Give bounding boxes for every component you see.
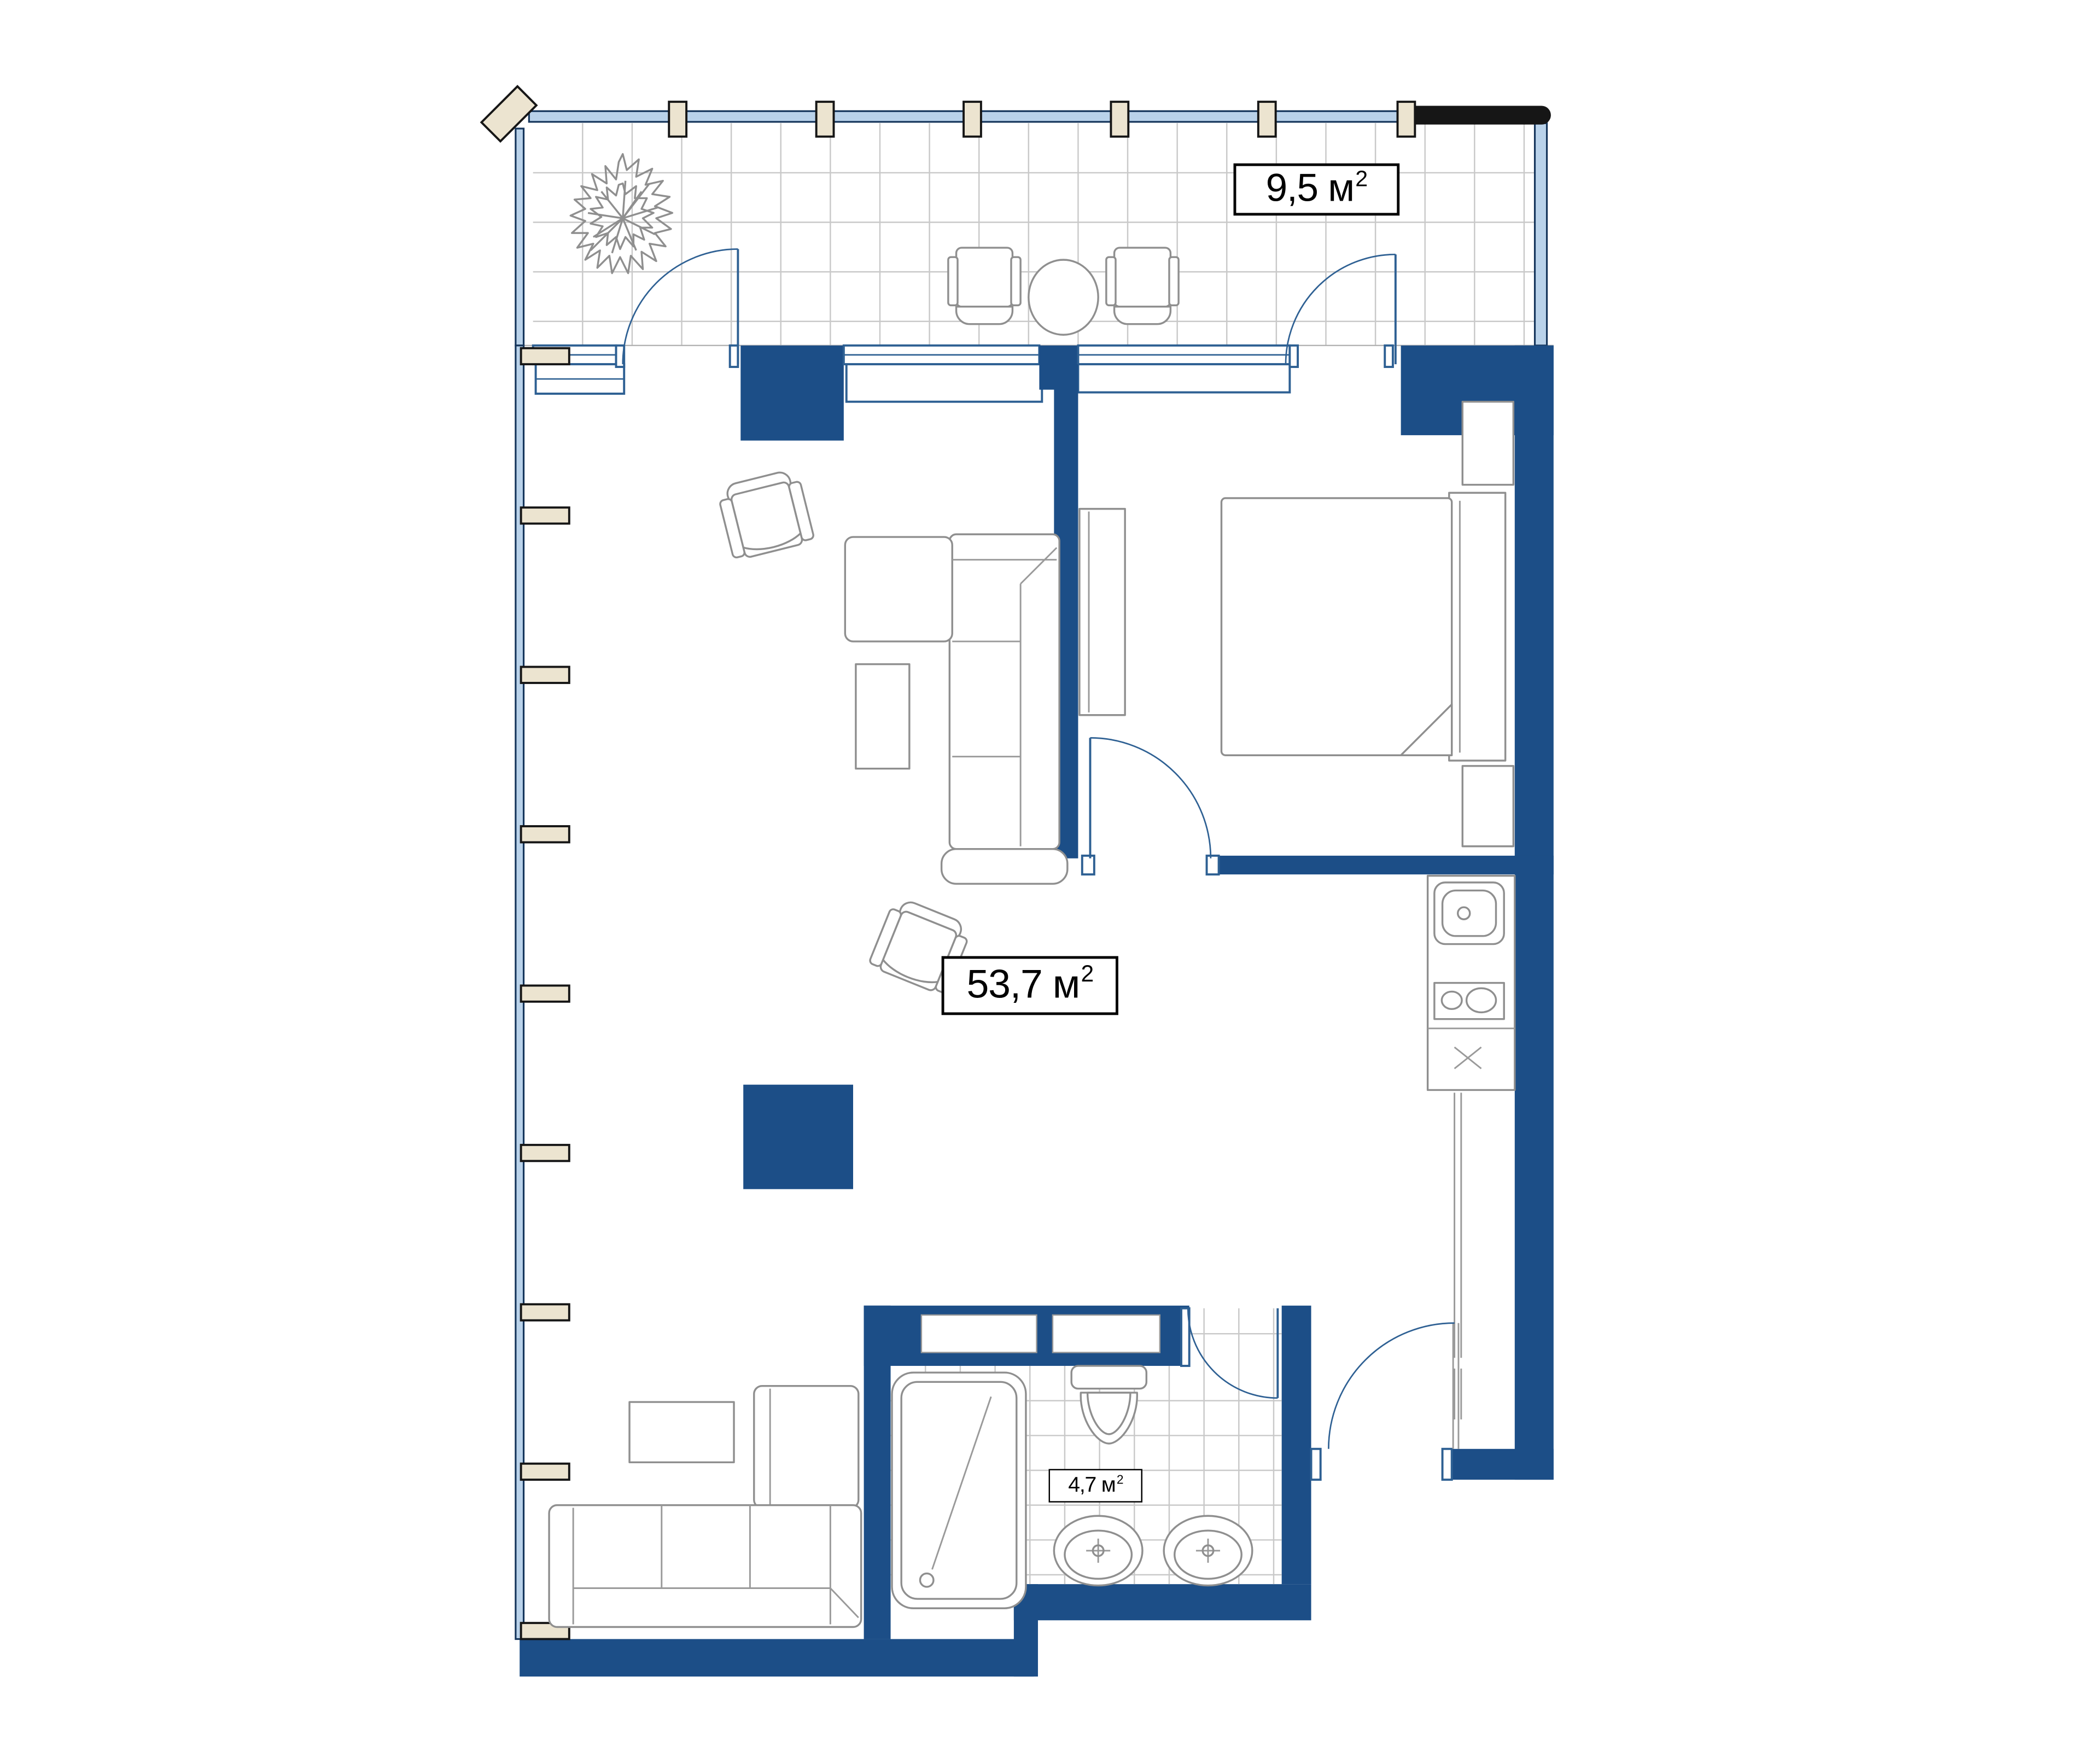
- wardrobe: [1080, 509, 1125, 715]
- room-area-label-balcony: 9,5 м2: [1234, 163, 1400, 216]
- bedroom-door: [1082, 738, 1219, 874]
- bed: [1221, 493, 1505, 761]
- cooktop: [1434, 983, 1504, 1019]
- entrance-door: [1311, 1323, 1459, 1480]
- sink: [1164, 1516, 1252, 1585]
- bathtub: [892, 1372, 1026, 1608]
- bathroom-door: [1181, 1308, 1277, 1398]
- wall-niche: [1053, 1315, 1160, 1353]
- wall-pier: [740, 346, 844, 441]
- sink: [1054, 1516, 1142, 1585]
- balcony: [481, 86, 1553, 346]
- wall-bathroom-bottom: [1014, 1584, 1311, 1620]
- area-exponent: 2: [1355, 168, 1367, 190]
- area-value: 53,7 м: [967, 966, 1080, 1006]
- area-exponent: 2: [1081, 963, 1093, 987]
- toilet: [1071, 1366, 1146, 1444]
- bed-headboard: [1449, 493, 1506, 761]
- wall-bottom: [520, 1639, 1034, 1677]
- balcony-chair: [1106, 248, 1179, 324]
- nightstand: [1462, 402, 1513, 485]
- sofa-armrest: [942, 849, 1067, 884]
- window-sill: [847, 364, 1042, 402]
- hallway: [1311, 1323, 1459, 1480]
- wall-bathroom-right: [1282, 1306, 1311, 1584]
- balcony-table: [1029, 260, 1098, 335]
- floor-plan: 9,5 м2 53,7 м2 4,7 м2: [0, 0, 2100, 1741]
- wall-entry: [1452, 1449, 1554, 1480]
- bedroom: [1080, 402, 1513, 874]
- area-value: 9,5 м: [1266, 170, 1354, 209]
- room-area-label-living: 53,7 м2: [942, 956, 1118, 1015]
- bed-mattress: [1221, 498, 1451, 755]
- coffee-table: [856, 664, 909, 769]
- window-sill: [1078, 364, 1290, 392]
- railing-bar: [1406, 106, 1550, 124]
- wall-pillar-living: [743, 1085, 853, 1189]
- area-exponent: 2: [1117, 1474, 1123, 1487]
- plant-icon: [570, 154, 672, 273]
- wall-niche: [921, 1315, 1037, 1353]
- facade-mullions: [521, 348, 569, 1639]
- kitchen: [1428, 876, 1515, 1419]
- balcony-door: [616, 249, 738, 367]
- left-glass-facade: [516, 346, 569, 1639]
- nightstand: [1462, 766, 1513, 846]
- wall-bedroom-bottom: [1219, 856, 1554, 874]
- side-table: [629, 1402, 734, 1462]
- armchair: [716, 468, 815, 561]
- balcony-furniture: [948, 248, 1179, 335]
- room-area-label-bathroom: 4,7 м2: [1049, 1469, 1142, 1503]
- kitchen-sink: [1434, 883, 1504, 944]
- wall-right: [1515, 346, 1554, 1480]
- balcony-chair: [948, 248, 1020, 324]
- area-value: 4,7 м: [1068, 1475, 1115, 1497]
